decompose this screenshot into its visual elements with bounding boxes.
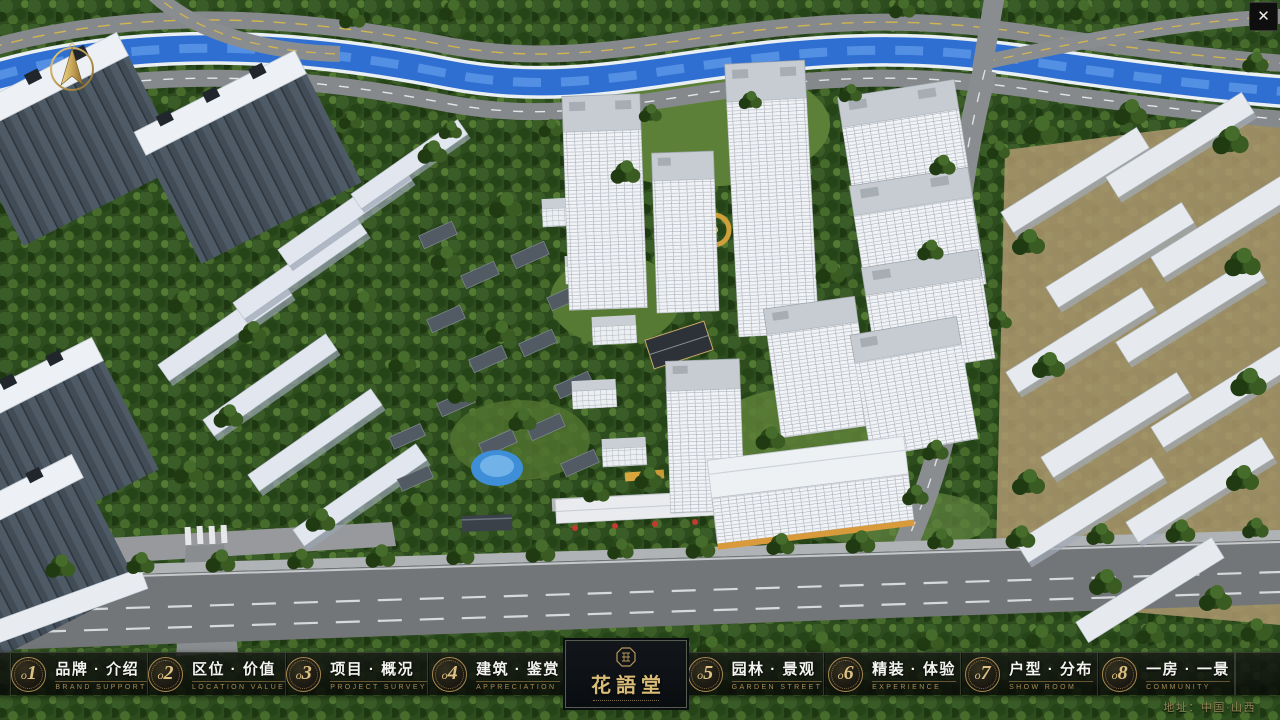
brand-seal-icon <box>616 647 636 667</box>
nav-item-location[interactable]: o2 区位 · 价值 LOCATION VALUE <box>148 653 286 695</box>
logo-title: 花語堂 <box>586 669 666 698</box>
nav-label: 建筑 · 鉴赏 <box>476 658 560 679</box>
bottom-navbar: o1 品牌 · 介绍 BRAND SUPPORT o2 区位 · 价值 LOCA… <box>0 652 1280 695</box>
nav-label: 户型 · 分布 <box>1009 658 1093 679</box>
nav-label: 区位 · 价值 <box>192 658 276 679</box>
nav-badge-8: o8 <box>1102 657 1137 692</box>
nav-badge-1: o1 <box>11 657 46 692</box>
nav-sublabel: APPRECIATION <box>476 681 560 691</box>
presentation-window: ✕ o1 品牌 · 介绍 BRAND SUPPORT o2 区位 · 价值 LO… <box>0 0 1280 720</box>
nav-label: 品牌 · 介绍 <box>55 658 139 679</box>
nav-sublabel: PROJECT SURVEY <box>330 681 427 691</box>
nav-badge-4: o4 <box>432 657 467 692</box>
nav-sublabel: LOCATION VALUE <box>192 681 285 691</box>
nav-item-interior[interactable]: o6 精装 · 体验 EXPERIENCE <box>824 653 961 695</box>
nav-badge-6: o6 <box>828 657 863 692</box>
close-button[interactable]: ✕ <box>1249 2 1278 31</box>
nav-sublabel: COMMUNITY <box>1146 681 1230 691</box>
nav-label: 一房 · 一景 <box>1146 658 1230 679</box>
nav-item-project[interactable]: o3 项目 · 概况 PROJECT SURVEY <box>286 653 428 695</box>
navbar-trail-spacer <box>1235 653 1280 695</box>
nav-sublabel: GARDEN STREET <box>732 681 823 691</box>
nav-sublabel: SHOW ROOM <box>1009 681 1093 691</box>
nav-item-brand[interactable]: o1 品牌 · 介绍 BRAND SUPPORT <box>11 653 148 695</box>
nav-label: 园林 · 景观 <box>732 658 816 679</box>
compass-north-icon <box>42 38 102 98</box>
aerial-masterplan-render[interactable] <box>0 0 1280 720</box>
nav-badge-3: o3 <box>286 657 321 692</box>
nav-badge-7: o7 <box>965 657 1000 692</box>
close-icon: ✕ <box>1257 9 1270 24</box>
nav-sublabel: EXPERIENCE <box>872 681 956 691</box>
nav-sublabel: BRAND SUPPORT <box>55 681 146 691</box>
project-address: 地址：中国·山西 <box>1163 699 1256 715</box>
nav-item-community[interactable]: o8 一房 · 一景 COMMUNITY <box>1098 653 1235 695</box>
logo-subtext-line <box>593 700 659 701</box>
nav-badge-5: o5 <box>688 657 723 692</box>
nav-badge-2: o2 <box>148 657 183 692</box>
logo-panel[interactable]: 花語堂 <box>565 640 687 708</box>
nav-item-garden[interactable]: o5 园林 · 景观 GARDEN STREET <box>687 653 824 695</box>
nav-item-architecture[interactable]: o4 建筑 · 鉴赏 APPRECIATION <box>428 653 565 695</box>
navbar-lead-spacer <box>0 653 11 695</box>
nav-label: 项目 · 概况 <box>330 658 414 679</box>
nav-item-floorplans[interactable]: o7 户型 · 分布 SHOW ROOM <box>961 653 1098 695</box>
nav-label: 精装 · 体验 <box>872 658 956 679</box>
